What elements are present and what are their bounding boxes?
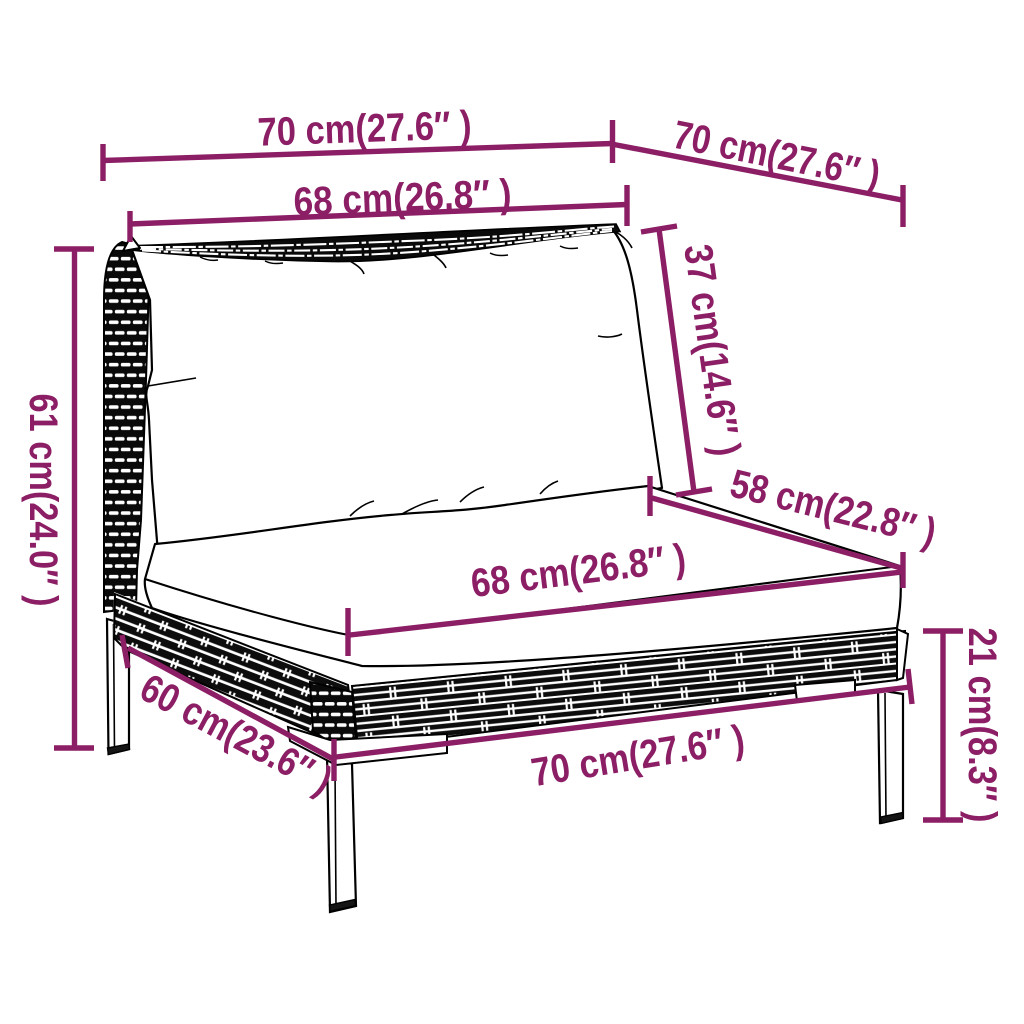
svg-text:61 cm(24.0″ ): 61 cm(24.0″ ) — [21, 394, 65, 607]
svg-text:21 cm(8.3″ ): 21 cm(8.3″ ) — [960, 628, 1004, 823]
svg-text:70 cm(27.6″ ): 70 cm(27.6″ ) — [257, 103, 472, 154]
svg-text:68 cm(26.8″ ): 68 cm(26.8″ ) — [293, 172, 513, 225]
